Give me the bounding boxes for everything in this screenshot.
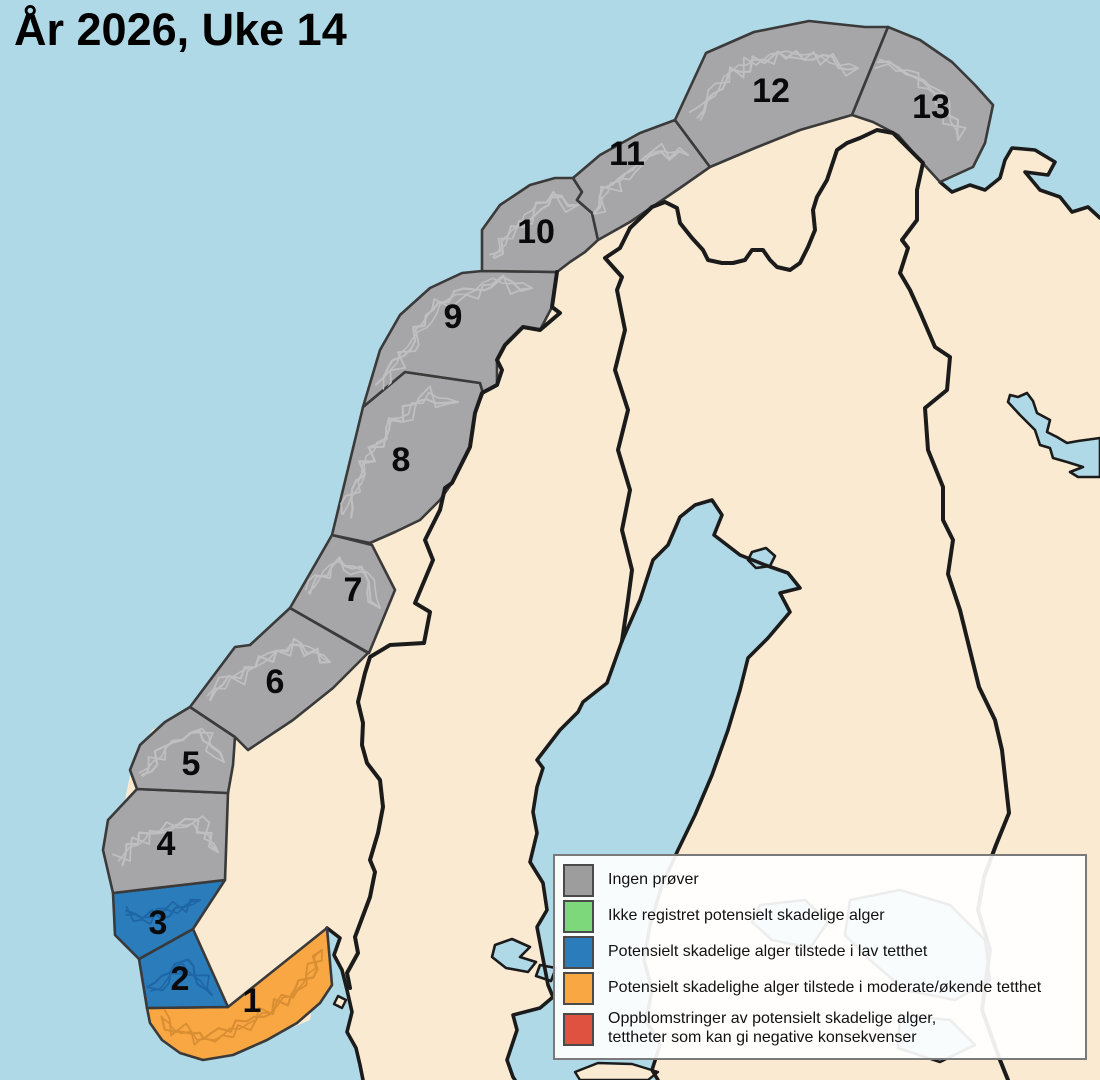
legend-label: Oppblomstringer av potensielt skadelige …	[608, 1010, 936, 1029]
legend-box: Ingen prøver Ikke registret potensielt s…	[553, 854, 1087, 1060]
zone-10-label: 10	[517, 213, 555, 251]
algae-status-map-page: 12345678910111213 År 2026, Uke 14 Ingen …	[0, 0, 1100, 1080]
legend-label: Potensielt skadelige alger tilstede i la…	[608, 943, 927, 960]
legend-item-bloom: Oppblomstringer av potensielt skadelige …	[563, 1006, 1079, 1052]
zone-9-label: 9	[444, 298, 463, 336]
legend-item-none-registered: Ikke registret potensielt skadelige alge…	[563, 898, 1079, 934]
legend-swatch-red	[563, 1013, 594, 1046]
island-oslofjord	[334, 996, 346, 1008]
zone-5-label: 5	[182, 745, 201, 783]
zone-13-label: 13	[912, 88, 950, 126]
zone-7-label: 7	[344, 571, 363, 609]
legend-swatch-blue	[563, 936, 594, 969]
legend-item-no-samples: Ingen prøver	[563, 862, 1079, 898]
legend-item-moderate-density: Potensielt skadelighe alger tilstede i m…	[563, 970, 1079, 1006]
zone-12-label: 12	[752, 72, 790, 110]
zone-11-label: 11	[609, 135, 645, 173]
zone-3-label: 3	[149, 904, 168, 942]
zone-6-label: 6	[266, 663, 285, 701]
legend-label: Ikke registret potensielt skadelige alge…	[608, 907, 885, 924]
legend-swatch-orange	[563, 972, 594, 1005]
legend-swatch-gray	[563, 864, 594, 897]
zone-4-label: 4	[157, 825, 176, 863]
legend-label: Potensielt skadelighe alger tilstede i m…	[608, 979, 1041, 996]
legend-item-low-density: Potensielt skadelige alger tilstede i la…	[563, 934, 1079, 970]
page-title: År 2026, Uke 14	[14, 4, 347, 56]
legend-label: Ingen prøver	[608, 871, 699, 888]
legend-label-line2: tettheter som kan gi negative konsekvens…	[608, 1029, 936, 1048]
zone-2-label: 2	[171, 960, 190, 998]
legend-swatch-green	[563, 900, 594, 933]
zone-1-label: 1	[243, 982, 262, 1020]
zone-8-label: 8	[392, 441, 411, 479]
